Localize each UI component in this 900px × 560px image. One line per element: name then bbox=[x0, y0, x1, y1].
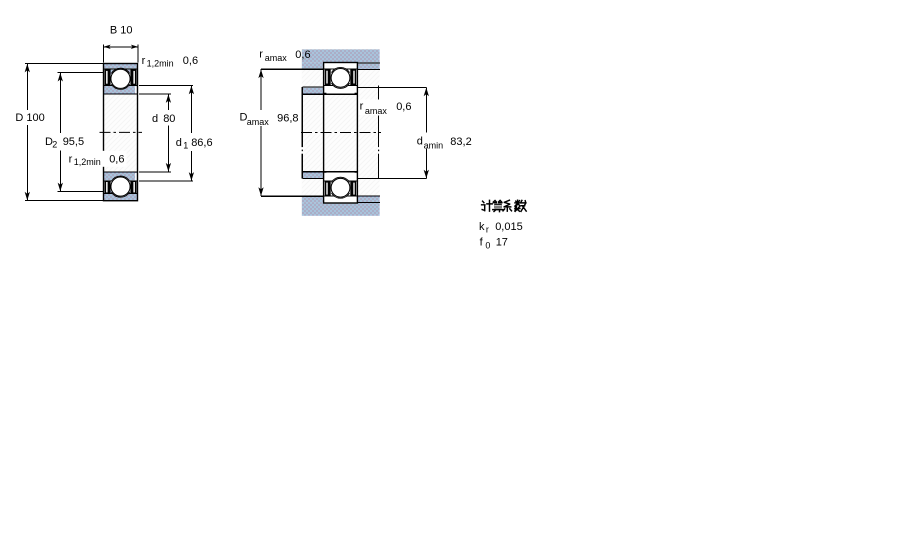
svg-text:96,8: 96,8 bbox=[277, 113, 298, 125]
svg-text:0: 0 bbox=[485, 240, 490, 250]
svg-text:17: 17 bbox=[496, 237, 508, 249]
svg-text:1,2min: 1,2min bbox=[74, 157, 101, 167]
svg-text:0,6: 0,6 bbox=[295, 49, 310, 61]
svg-text:D 100: D 100 bbox=[15, 112, 44, 124]
svg-text:r: r bbox=[69, 153, 73, 165]
svg-text:1,2min: 1,2min bbox=[147, 59, 174, 69]
svg-text:2: 2 bbox=[52, 140, 57, 150]
svg-text:95,5: 95,5 bbox=[63, 136, 84, 148]
svg-text:80: 80 bbox=[163, 113, 175, 125]
svg-text:k: k bbox=[479, 221, 485, 233]
svg-text:amax: amax bbox=[247, 117, 270, 127]
svg-text:amax: amax bbox=[265, 53, 288, 63]
svg-text:0,6: 0,6 bbox=[183, 55, 198, 67]
svg-text:0,6: 0,6 bbox=[109, 154, 124, 166]
svg-text:r: r bbox=[259, 49, 263, 61]
svg-text:d: d bbox=[417, 136, 423, 148]
svg-text:B 10: B 10 bbox=[110, 25, 133, 37]
svg-text:amax: amax bbox=[365, 106, 388, 116]
svg-text:1: 1 bbox=[183, 141, 188, 151]
svg-text:r: r bbox=[486, 225, 489, 235]
svg-text:r: r bbox=[360, 101, 364, 113]
svg-text:r: r bbox=[142, 55, 146, 67]
svg-text:0,015: 0,015 bbox=[495, 221, 523, 233]
svg-text:d: d bbox=[152, 113, 158, 125]
svg-text:83,2: 83,2 bbox=[450, 136, 471, 148]
svg-text:0,6: 0,6 bbox=[396, 101, 411, 113]
svg-text:d: d bbox=[176, 137, 182, 149]
svg-text:amin: amin bbox=[424, 140, 444, 150]
svg-text:86,6: 86,6 bbox=[191, 137, 212, 149]
